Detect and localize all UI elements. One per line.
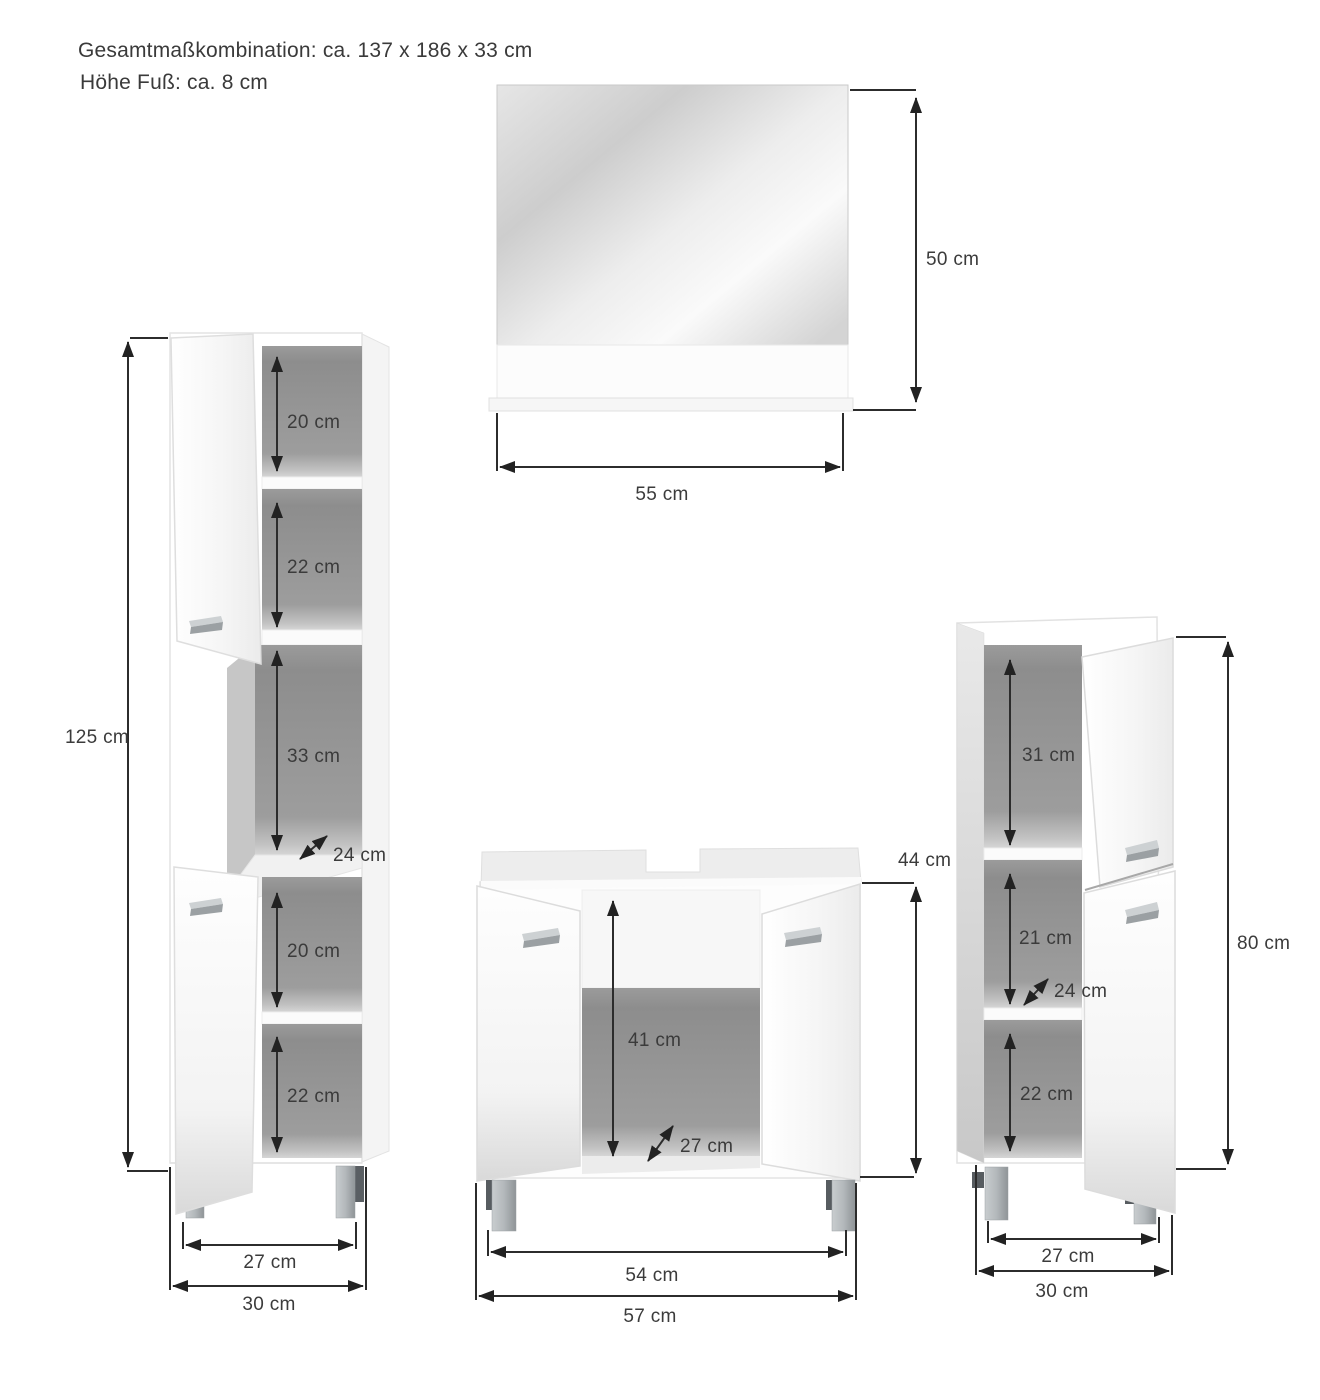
dimension-label: 54 cm (625, 1265, 678, 1286)
interior-back-wall (582, 988, 760, 1156)
bathroom-furniture-dimension-diagram: Gesamtmaßkombination: ca. 137 x 186 x 33… (0, 0, 1320, 1400)
diagram-canvas: Gesamtmaßkombination: ca. 137 x 186 x 33… (0, 0, 1320, 1400)
height-dimension: 80 cm (1176, 637, 1290, 1169)
height-dimension: 44 cm (860, 850, 951, 1177)
dimension-label: 125 cm (65, 727, 129, 748)
shelf-board (262, 630, 362, 645)
cabinet-leg-shadow (355, 1166, 364, 1202)
cabinet-leg (832, 1180, 855, 1231)
dimension-label: 55 cm (635, 484, 688, 505)
cabinet-door-left (477, 886, 580, 1181)
cabinet-door-lower (174, 867, 258, 1214)
dimension-label: 30 cm (1035, 1281, 1088, 1302)
side-cabinet: 31 cm 21 cm 24 cm 22 cm 80 cm 27 cm (957, 617, 1290, 1302)
dimension-label: 22 cm (287, 1086, 340, 1107)
cabinet-leg (492, 1180, 516, 1231)
dimension-label: 20 cm (287, 412, 340, 433)
overall-dimensions-text: Gesamtmaßkombination: ca. 137 x 186 x 33… (78, 39, 532, 62)
outer-width-dimension: 57 cm (476, 1183, 856, 1327)
foot-height-text: Höhe Fuß: ca. 8 cm (80, 71, 268, 94)
mirror-glass (497, 85, 848, 345)
mirror-shelf (489, 398, 853, 411)
cabinet-side-panel (362, 334, 389, 1162)
shelf-board (262, 1012, 362, 1024)
inner-width-dimension: 54 cm (488, 1230, 846, 1286)
cabinet-leg (985, 1167, 1008, 1220)
dimension-label: 41 cm (628, 1030, 681, 1051)
dimension-label: 22 cm (1020, 1084, 1073, 1105)
mirror-height-dimension: 50 cm (850, 90, 979, 410)
dimension-label: 80 cm (1237, 933, 1290, 954)
dimension-label: 20 cm (287, 941, 340, 962)
dimension-label: 24 cm (1054, 981, 1107, 1002)
dimension-label: 30 cm (242, 1294, 295, 1315)
dimension-label: 33 cm (287, 746, 340, 767)
interior-upper-panel (582, 890, 760, 988)
dimension-label: 27 cm (1041, 1246, 1094, 1267)
dimension-label: 27 cm (243, 1252, 296, 1273)
dimension-label: 50 cm (926, 249, 979, 270)
header: Gesamtmaßkombination: ca. 137 x 186 x 33… (78, 39, 532, 94)
cabinet-door-upper (171, 334, 261, 664)
mirror-width-dimension: 55 cm (497, 413, 843, 505)
shelf-board (984, 1008, 1082, 1020)
dimension-label: 21 cm (1019, 928, 1072, 949)
mirror: 50 cm 55 cm (489, 85, 979, 505)
dimension-label: 57 cm (623, 1306, 676, 1327)
shelf-board (984, 848, 1082, 860)
shelf-board (262, 477, 362, 489)
tall-cabinet: 125 cm 20 cm 22 cm 33 cm 24 cm 20 cm 22 … (65, 333, 389, 1315)
cabinet-leg (336, 1166, 355, 1218)
dimension-label: 27 cm (680, 1136, 733, 1157)
dimension-label: 44 cm (898, 850, 951, 871)
dimension-label: 24 cm (333, 845, 386, 866)
open-niche-side-wall (227, 645, 255, 893)
dimension-label: 31 cm (1022, 745, 1075, 766)
cabinet-leg-shadow (972, 1172, 984, 1188)
inner-width-dimension: 27 cm (183, 1222, 356, 1273)
cabinet-side-panel (957, 623, 984, 1163)
tall-cabinet-height-dimension: 125 cm (65, 338, 168, 1171)
inner-width-dimension: 27 cm (988, 1217, 1159, 1267)
mirror-frame-bottom (497, 345, 848, 398)
vanity-cabinet: 41 cm 27 cm 44 cm 54 cm 57 cm (476, 848, 951, 1327)
dimension-label: 22 cm (287, 557, 340, 578)
